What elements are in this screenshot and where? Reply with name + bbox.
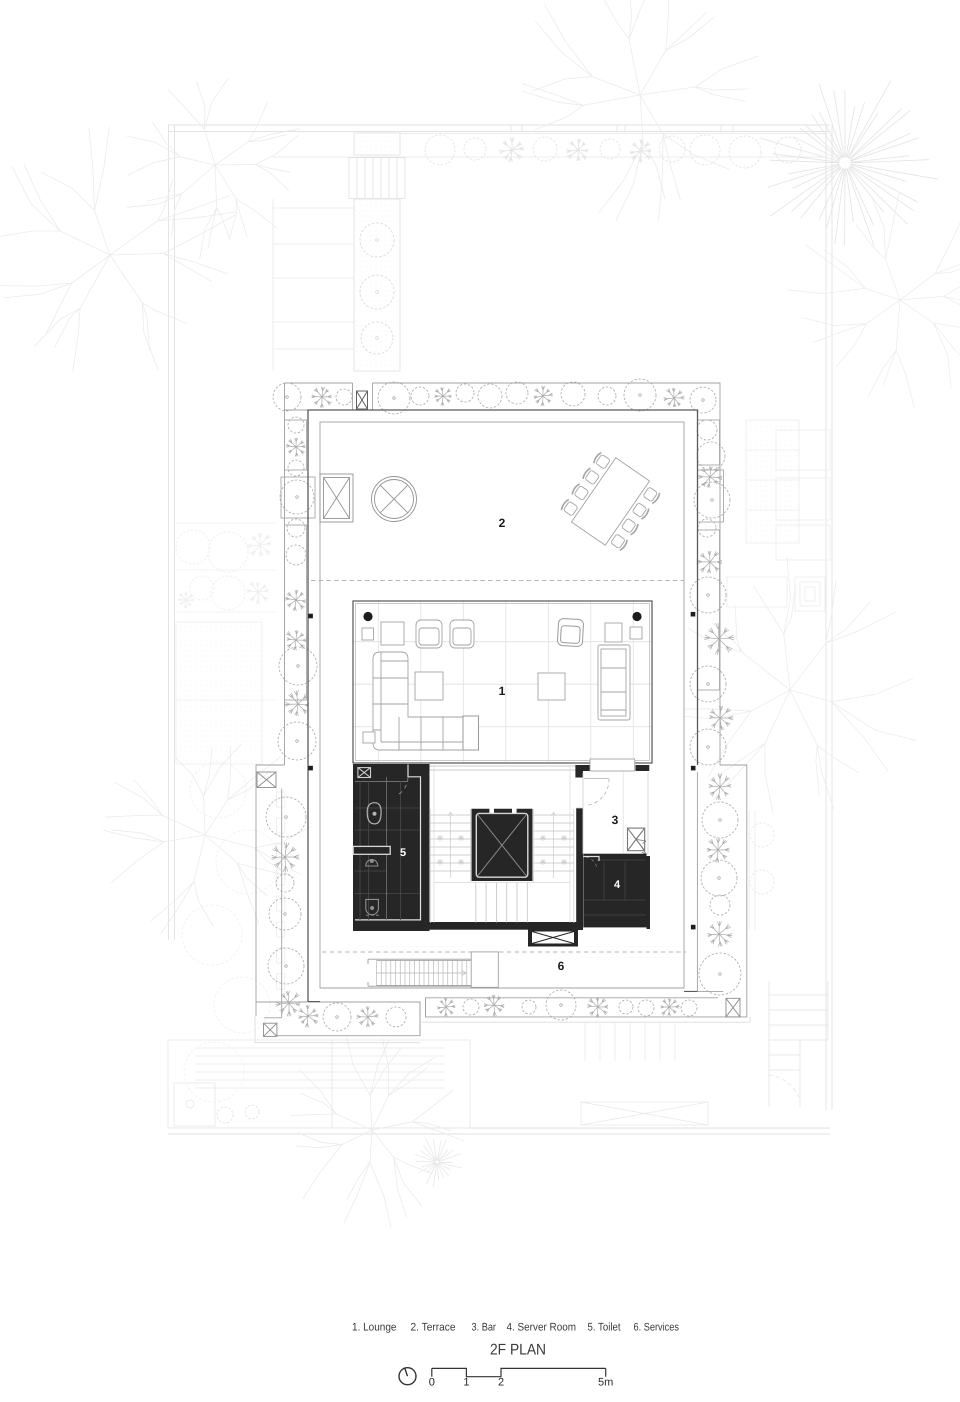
svg-text:1: 1 bbox=[499, 684, 506, 698]
svg-text:2: 2 bbox=[498, 1377, 504, 1389]
svg-text:1: 1 bbox=[463, 1377, 469, 1389]
svg-text:5m: 5m bbox=[598, 1377, 613, 1389]
svg-text:2: 2 bbox=[499, 516, 506, 530]
svg-text:3. Bar: 3. Bar bbox=[472, 1322, 497, 1334]
svg-text:2. Terrace: 2. Terrace bbox=[411, 1322, 456, 1334]
svg-text:6: 6 bbox=[558, 959, 565, 973]
svg-text:4: 4 bbox=[614, 879, 621, 891]
svg-text:4. Server Room: 4. Server Room bbox=[507, 1322, 577, 1334]
svg-text:2F PLAN: 2F PLAN bbox=[490, 1342, 546, 1359]
svg-text:5. Toilet: 5. Toilet bbox=[588, 1322, 621, 1334]
svg-text:3: 3 bbox=[612, 813, 619, 827]
svg-text:5: 5 bbox=[400, 847, 406, 859]
svg-text:1. Lounge: 1. Lounge bbox=[352, 1322, 397, 1334]
svg-text:0: 0 bbox=[429, 1377, 435, 1389]
svg-text:6. Services: 6. Services bbox=[634, 1322, 680, 1334]
